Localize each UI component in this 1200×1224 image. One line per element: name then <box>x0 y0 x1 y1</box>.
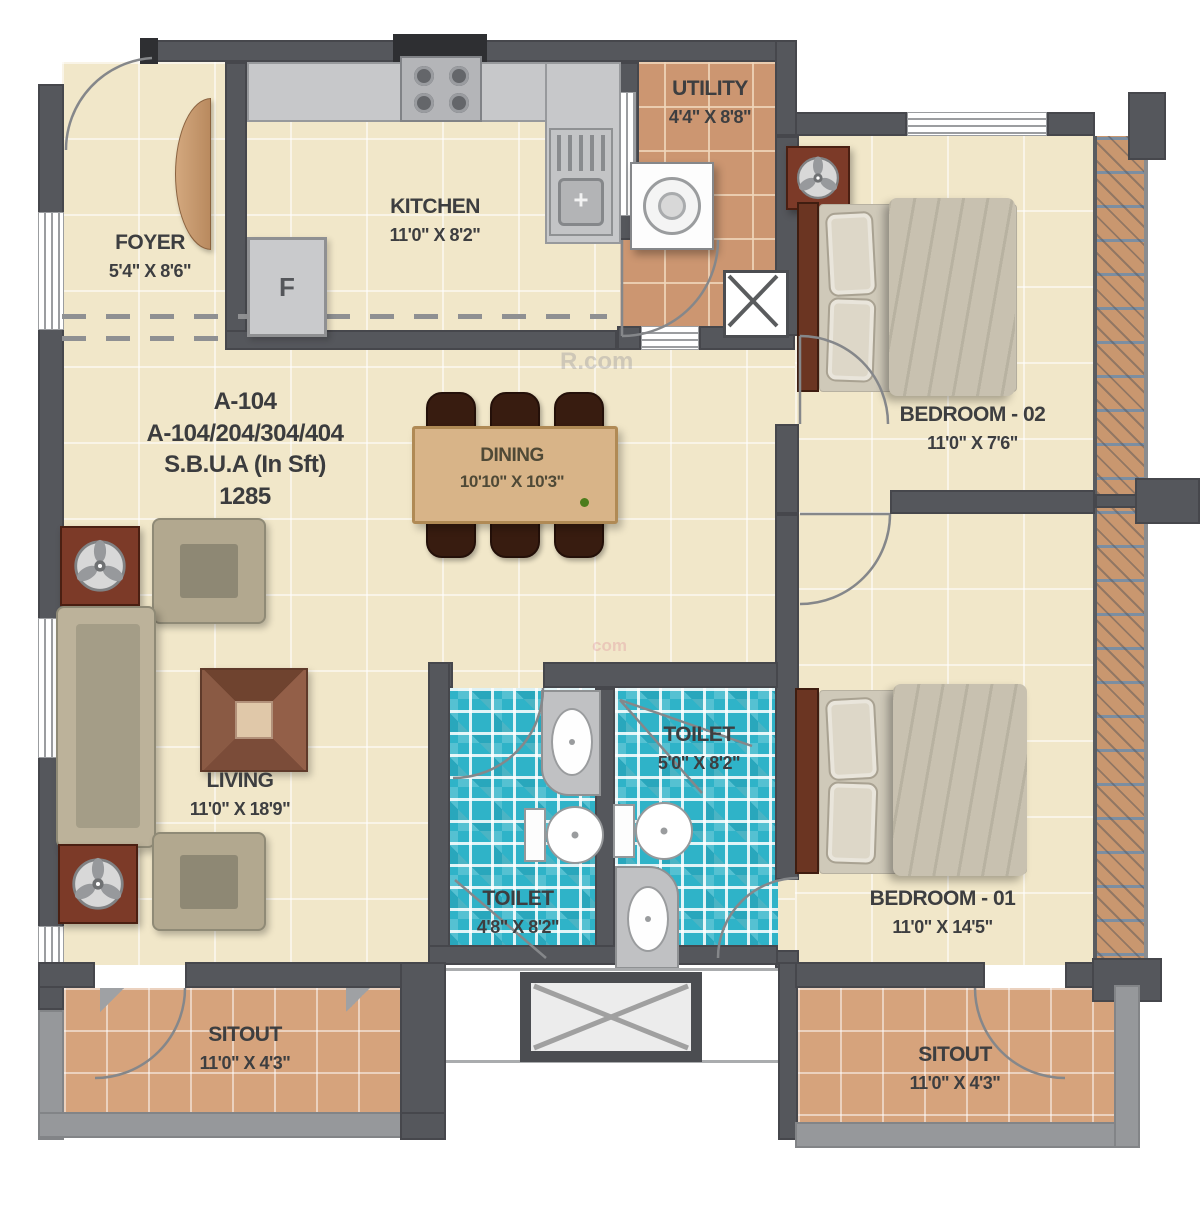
room-dims: 11'0" X 7'6" <box>855 430 1090 456</box>
wall <box>543 662 778 688</box>
sitout-right-label: SITOUT 11'0" X 4'3" <box>835 1040 1075 1097</box>
kitchen-label: KITCHEN 11'0" X 8'2" <box>350 192 520 249</box>
room-dims: 5'4" X 8'6" <box>70 258 230 284</box>
room-dims: 11'0" X 18'9" <box>115 796 365 822</box>
room-name: TOILET <box>438 884 598 914</box>
wc-tank <box>524 808 546 862</box>
room-dims: 11'0" X 8'2" <box>350 222 520 248</box>
stove <box>400 56 482 122</box>
parapet-wall <box>38 1112 428 1138</box>
room-dims: 10'10" X 10'3" <box>412 470 612 495</box>
unit-series: A-104/204/304/404 <box>80 418 410 450</box>
bedroom1-label: BEDROOM - 01 11'0" X 14'5" <box>815 884 1070 941</box>
wall <box>140 38 158 64</box>
parapet-wall <box>1114 985 1140 1148</box>
wall <box>1047 112 1095 136</box>
window <box>907 112 1047 136</box>
lift-shaft <box>520 972 702 1062</box>
wall <box>775 424 799 514</box>
wash-basin <box>627 886 669 952</box>
wall <box>185 962 428 988</box>
window <box>38 212 64 330</box>
room-name: SITOUT <box>835 1040 1075 1070</box>
right-ledge <box>1093 136 1148 990</box>
bed <box>795 686 1030 878</box>
wc-tank <box>613 804 635 858</box>
dashed-separator <box>62 336 232 341</box>
room-name: FOYER <box>70 228 230 258</box>
floor-plan: F <box>0 0 1200 1224</box>
stove-burner-icon <box>449 66 469 86</box>
wall <box>38 962 95 988</box>
kitchen-sink <box>549 128 613 236</box>
parapet-wall <box>795 1122 1140 1148</box>
coffee-table <box>200 668 308 772</box>
wall <box>428 945 778 965</box>
railing-bracket-icon <box>100 988 124 1012</box>
corridor-line <box>446 968 778 971</box>
wall <box>400 1112 446 1140</box>
stove-burner-icon <box>414 66 434 86</box>
foyer-label: FOYER 5'4" X 8'6" <box>70 228 230 285</box>
wall <box>795 962 985 988</box>
bed-blanket <box>893 684 1027 876</box>
toilet-wc <box>613 800 697 858</box>
room-name: TOILET <box>617 720 781 750</box>
ceiling-fan-icon <box>795 155 841 201</box>
sink-drainboard <box>557 135 605 171</box>
room-name: SITOUT <box>115 1020 375 1050</box>
bed-blanket <box>889 198 1015 396</box>
side-table <box>58 844 138 924</box>
dashed-separator <box>62 314 607 319</box>
wall <box>890 490 1095 514</box>
room-dims: 11'0" X 4'3" <box>835 1070 1075 1096</box>
utility-label: UTILITY 4'4" X 8'8" <box>632 74 788 131</box>
wall <box>617 326 641 350</box>
bedroom2-label: BEDROOM - 02 11'0" X 7'6" <box>855 400 1090 457</box>
table-decor-icon <box>580 498 589 507</box>
wash-basin-counter <box>615 866 679 969</box>
armchair <box>152 832 266 931</box>
kitchen-counter <box>247 62 549 122</box>
bed-headboard <box>795 688 819 874</box>
toilet-master-label: TOILET 5'0" X 8'2" <box>617 720 781 777</box>
wall <box>778 962 798 1140</box>
sink-basin <box>558 178 604 226</box>
armchair-seat <box>180 855 238 909</box>
unit-title: A-104 <box>80 386 410 418</box>
washer-drum-center-icon <box>658 192 686 220</box>
wc-bowl <box>546 806 604 864</box>
unit-info-block: A-104 A-104/204/304/404 S.B.U.A (In Sft)… <box>80 386 410 513</box>
bed <box>797 198 1019 398</box>
room-name: BEDROOM - 02 <box>855 400 1090 430</box>
room-dims: 11'0" X 14'5" <box>815 914 1070 940</box>
stove-burner-icon <box>449 93 469 113</box>
living-label: LIVING 11'0" X 18'9" <box>115 766 365 823</box>
pillow <box>825 697 879 782</box>
wall <box>1135 478 1200 524</box>
room-name: UTILITY <box>632 74 788 104</box>
wash-basin <box>551 708 593 776</box>
sitout-left-label: SITOUT 11'0" X 4'3" <box>115 1020 375 1077</box>
dining-label: DINING 10'10" X 10'3" <box>412 442 612 494</box>
room-dims: 4'8" X 8'2" <box>438 914 598 940</box>
toilet-wc <box>524 804 608 862</box>
armchair-seat <box>180 544 238 598</box>
room-dims: 4'4" X 8'8" <box>632 104 788 130</box>
wall <box>225 62 247 332</box>
utility-shaft <box>723 270 789 338</box>
pillow <box>825 211 877 297</box>
unit-area-label: S.B.U.A (In Sft) <box>80 449 410 481</box>
washing-machine <box>630 162 714 250</box>
pillow <box>826 781 879 865</box>
room-dims: 11'0" X 4'3" <box>115 1050 375 1076</box>
wall <box>795 112 907 136</box>
fridge-label: F <box>279 272 295 303</box>
railing-bracket-icon <box>346 988 370 1012</box>
watermark: com <box>592 636 627 656</box>
watermark: R.com <box>560 348 633 376</box>
side-table <box>60 526 140 606</box>
room-name: KITCHEN <box>350 192 520 222</box>
room-name: LIVING <box>115 766 365 796</box>
ceiling-fan-icon <box>70 856 126 912</box>
wall <box>1128 92 1166 160</box>
wall <box>1095 494 1140 508</box>
room-name: BEDROOM - 01 <box>815 884 1070 914</box>
coffee-table-center <box>235 701 273 739</box>
unit-area-value: 1285 <box>80 481 410 513</box>
toilet-common-label: TOILET 4'8" X 8'2" <box>438 884 598 941</box>
stove-burner-icon <box>414 93 434 113</box>
pillow <box>826 297 877 383</box>
wash-basin-counter <box>541 690 601 796</box>
room-dims: 5'0" X 8'2" <box>617 750 781 776</box>
bed-headboard <box>797 202 819 392</box>
ceiling-fan-icon <box>72 538 128 594</box>
wall <box>1065 962 1095 988</box>
fridge: F <box>247 237 327 337</box>
wc-bowl <box>635 802 693 860</box>
room-name: DINING <box>412 442 612 470</box>
armchair <box>152 518 266 624</box>
window <box>641 326 699 350</box>
